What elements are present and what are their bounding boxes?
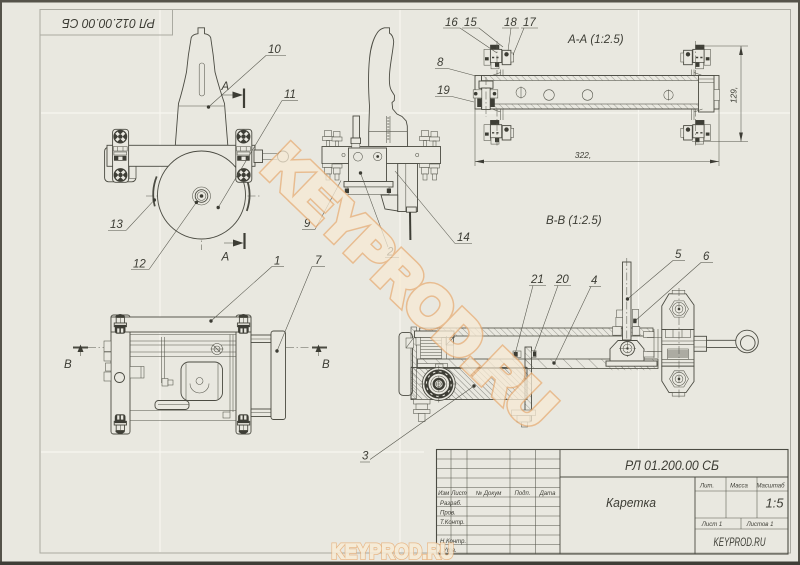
svg-text:Пров.: Пров. [440, 510, 456, 516]
svg-text:18: 18 [504, 17, 517, 29]
svg-text:1:5: 1:5 [765, 496, 784, 511]
svg-text:Подп.: Подп. [515, 491, 531, 497]
svg-text:129,: 129, [729, 87, 739, 104]
svg-text:14: 14 [457, 232, 470, 244]
svg-text:Масштаб: Масштаб [756, 484, 785, 490]
svg-text:РЛ 012.00.00 СБ: РЛ 012.00.00 СБ [62, 16, 155, 31]
svg-text:Разраб.: Разраб. [440, 501, 462, 507]
svg-text:Изм: Изм [438, 491, 449, 497]
svg-text:12: 12 [133, 259, 146, 271]
svg-text:Листов 1: Листов 1 [746, 522, 774, 528]
svg-text:19: 19 [437, 85, 450, 97]
svg-text:А: А [221, 81, 230, 93]
svg-text:3: 3 [362, 451, 369, 463]
svg-text:В: В [64, 359, 72, 371]
svg-text:А-А (1:2.5): А-А (1:2.5) [567, 34, 624, 46]
svg-text:11: 11 [284, 89, 296, 101]
svg-text:17: 17 [523, 17, 536, 29]
svg-text:4: 4 [591, 275, 597, 287]
svg-text:Масса: Масса [730, 484, 748, 490]
svg-text:Каретка: Каретка [606, 496, 656, 510]
svg-text:10: 10 [268, 44, 281, 56]
svg-text:Лист: Лист [450, 491, 466, 497]
svg-text:20: 20 [555, 274, 569, 286]
svg-text:16: 16 [445, 17, 458, 29]
svg-text:Лист 1: Лист 1 [701, 522, 722, 528]
svg-text:15: 15 [464, 17, 477, 29]
svg-text:13: 13 [110, 219, 123, 231]
svg-text:21: 21 [530, 274, 544, 286]
svg-text:1: 1 [274, 256, 280, 268]
svg-text:А: А [221, 252, 230, 264]
svg-text:6: 6 [703, 251, 710, 263]
svg-text:KEYPROD.RU: KEYPROD.RU [332, 540, 454, 564]
svg-text:РЛ 01.200.00 СБ: РЛ 01.200.00 СБ [625, 458, 719, 473]
svg-text:7: 7 [315, 255, 322, 267]
svg-text:Лит.: Лит. [699, 484, 714, 490]
svg-text:В-В (1:2.5): В-В (1:2.5) [546, 215, 602, 227]
svg-text:В: В [322, 359, 330, 371]
svg-text:5: 5 [675, 249, 682, 261]
svg-text:KEYPROD.RU: KEYPROD.RU [714, 537, 766, 549]
svg-text:8: 8 [437, 57, 444, 69]
svg-text:Т.Контр.: Т.Контр. [440, 520, 465, 526]
svg-text:322,: 322, [575, 150, 592, 160]
svg-text:№ Докум: № Докум [476, 490, 502, 497]
svg-text:Дата: Дата [539, 491, 556, 497]
